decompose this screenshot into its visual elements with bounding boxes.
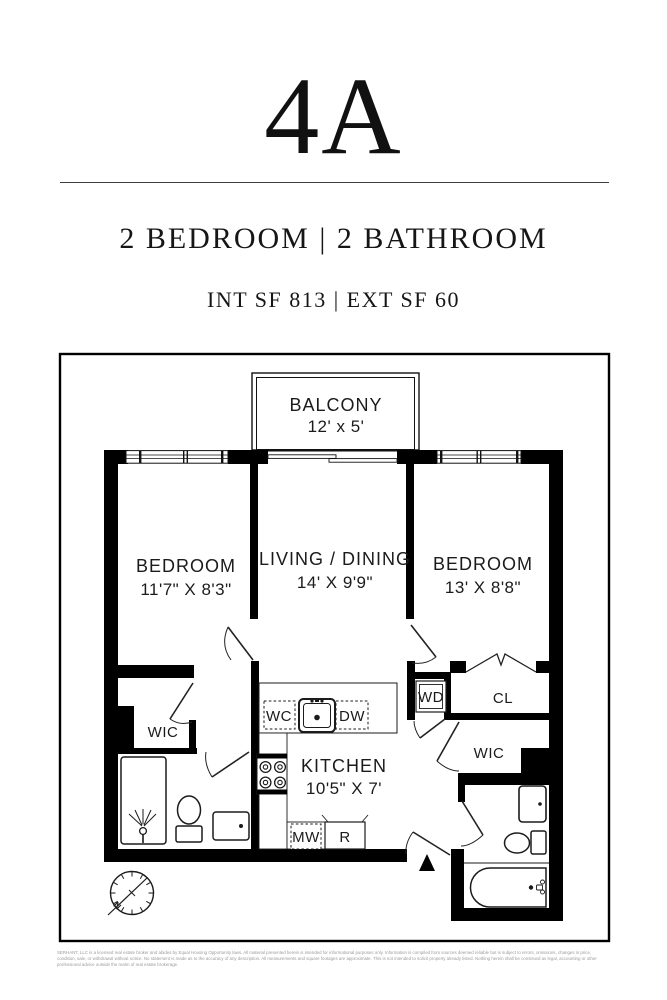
room-dim-living: 14' X 9'9" xyxy=(297,573,373,592)
room-label-living: LIVING / DINING xyxy=(259,549,411,569)
bathroom-left-door xyxy=(206,752,249,777)
bathroom-right-fixtures xyxy=(464,786,549,907)
floor-plan: N BALCONY 12' x 5' BEDROOM 11'7" X 8'3" … xyxy=(0,0,667,1000)
compass-icon: N xyxy=(108,872,154,916)
label-washer-dryer: WD xyxy=(418,689,444,706)
floorplan-sheet: 4A 2 BEDROOM | 2 BATHROOM INT SF 813 | E… xyxy=(0,0,667,1000)
bedroom-right-door xyxy=(411,625,436,663)
entry-arrow-icon xyxy=(419,854,435,871)
label-dishwasher: DW xyxy=(339,708,365,725)
label-water-closet: WC xyxy=(266,708,292,725)
room-dim-bedroom-left: 11'7" X 8'3" xyxy=(140,580,231,599)
label-refrigerator: R xyxy=(339,829,350,846)
kitchen-sink-icon xyxy=(299,698,335,732)
label-wic-right: WIC xyxy=(474,745,505,762)
room-label-balcony: BALCONY xyxy=(289,395,382,415)
bathroom-left-fixtures xyxy=(121,757,249,844)
toilet-right-icon xyxy=(505,831,547,854)
bedroom-left-door xyxy=(225,627,253,660)
room-dim-balcony: 12' x 5' xyxy=(308,417,365,436)
shower-icon xyxy=(121,757,166,844)
bathroom-right-door xyxy=(461,801,483,846)
window-left xyxy=(126,451,228,464)
label-wic-left: WIC xyxy=(148,724,179,741)
bathtub-icon xyxy=(471,868,546,907)
label-microwave: MW xyxy=(292,829,320,846)
room-dim-kitchen: 10'5" X 7' xyxy=(306,779,382,798)
wic-left-door xyxy=(170,683,193,723)
vanity-sink-icon xyxy=(519,786,546,822)
label-closet: CL xyxy=(493,690,513,707)
room-label-bedroom-right: BEDROOM xyxy=(433,554,533,574)
wd-closet-door xyxy=(414,719,445,738)
closet-double-doors xyxy=(466,654,536,672)
stove-icon xyxy=(257,754,287,794)
room-dim-bedroom-right: 13' X 8'8" xyxy=(445,578,521,597)
legal-disclaimer: SERHANT. LLC is a licensed real estate b… xyxy=(57,950,610,967)
sink-icon xyxy=(213,812,249,840)
wic-right-door xyxy=(437,722,459,771)
sliding-door xyxy=(268,451,397,462)
window-right xyxy=(437,451,521,464)
entry-door xyxy=(406,832,450,855)
room-label-bedroom-left: BEDROOM xyxy=(136,556,236,576)
toilet-icon xyxy=(176,796,202,842)
room-label-kitchen: KITCHEN xyxy=(301,756,387,776)
